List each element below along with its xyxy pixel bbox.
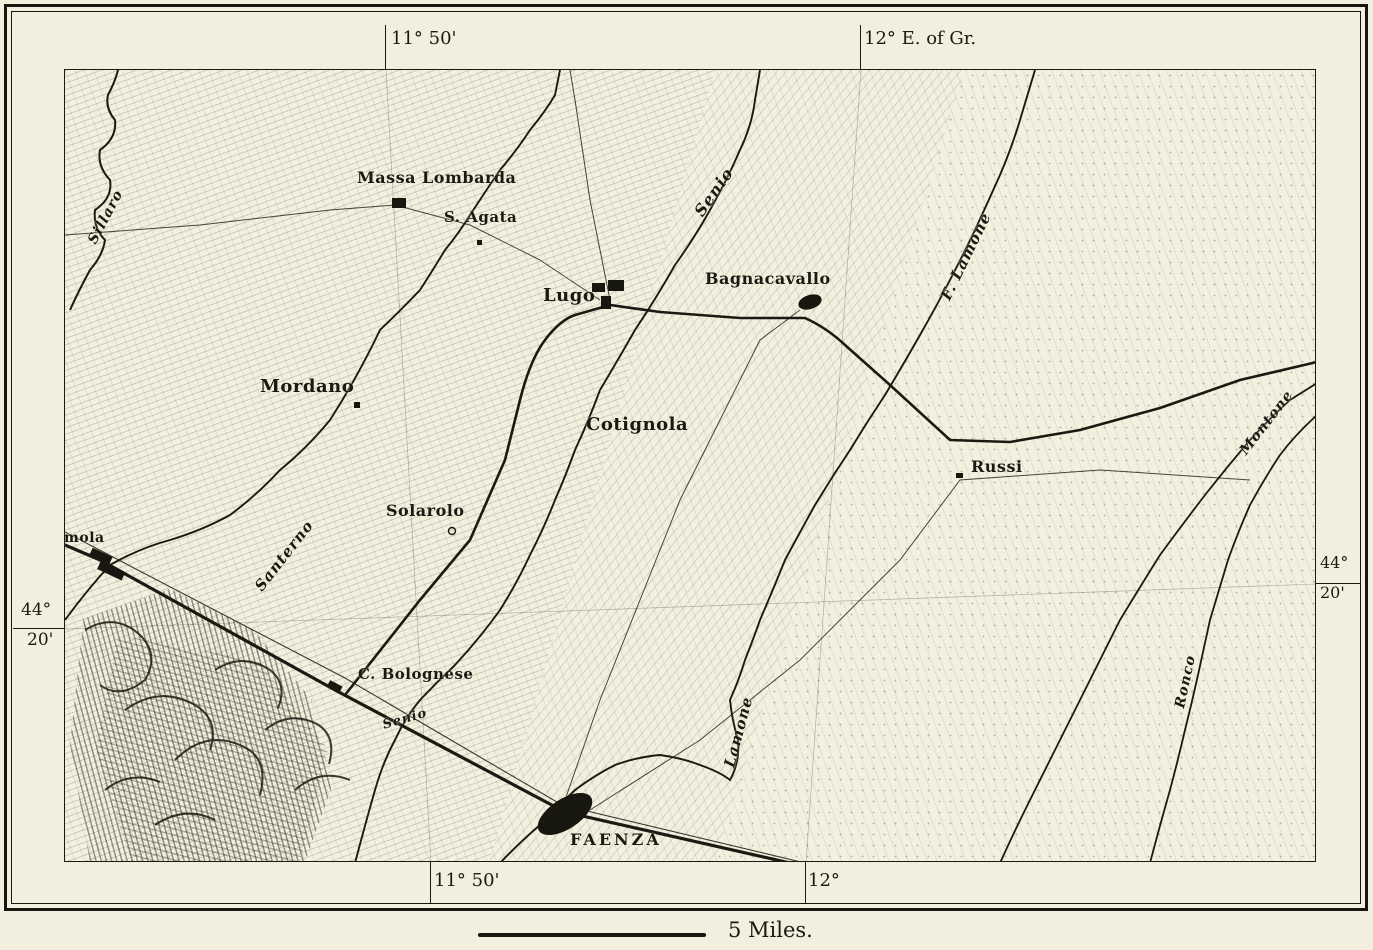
town-label-imola: Imola [64, 530, 105, 546]
top-tick-12 [860, 25, 861, 69]
town-symbol-russi [956, 473, 963, 478]
top-right-longitude-label: 12° E. of Gr. [864, 28, 976, 49]
map-linework [65, 70, 1316, 862]
town-label-bagnacavallo: Bagnacavallo [705, 269, 831, 288]
river-santerno [65, 70, 560, 620]
river-montone [1000, 383, 1316, 862]
graticule-line-12 [806, 70, 861, 862]
map-canvas: Massa Lombarda S. Agata Lugo Bagnacavall… [64, 69, 1316, 862]
town-label-cotignola: Cotignola [586, 414, 688, 435]
town-symbol-lugo-2 [608, 280, 624, 291]
right-latitude-degrees-label: 44° [1320, 553, 1348, 572]
hill-ridge-strokes [85, 622, 350, 825]
town-label-lugo: Lugo [543, 285, 595, 306]
left-latitude-minutes-label: 20' [27, 630, 53, 650]
scale-bar [478, 933, 706, 937]
town-label-faenza: FAENZA [570, 830, 662, 849]
left-tick-44-20 [13, 628, 64, 629]
road-faenza-north [565, 310, 800, 800]
bottom-right-longitude-label: 12° [808, 870, 840, 891]
town-symbol-mordano [354, 402, 360, 408]
town-label-castel-bolognese: C. Bolognese [358, 665, 473, 683]
top-tick-11-50 [385, 25, 386, 69]
road-massa-lombarda-lugo [65, 205, 600, 300]
railway-lugo-branch [345, 305, 1316, 695]
river-lamone [500, 70, 1035, 862]
road-faenza-russi [590, 470, 1250, 810]
town-symbol-s-agata [477, 240, 482, 245]
bottom-left-longitude-label: 11° 50' [434, 870, 499, 891]
town-label-s-agata: S. Agata [444, 208, 517, 226]
bottom-tick-12 [805, 862, 806, 904]
road-lugo-north [570, 70, 610, 300]
town-label-mordano: Mordano [260, 376, 354, 397]
town-symbol-massa-lombarda [392, 198, 406, 208]
river-senio [355, 70, 760, 862]
left-latitude-degrees-label: 44° [21, 600, 51, 620]
town-label-massa-lombarda: Massa Lombarda [357, 168, 516, 187]
engraved-map-page: 11° 50' 12° E. of Gr. 11° 50' 12° 44° 20… [0, 0, 1373, 950]
top-left-longitude-label: 11° 50' [391, 28, 456, 49]
river-ronco [1150, 415, 1316, 862]
right-latitude-minutes-label: 20' [1320, 583, 1345, 602]
scale-label: 5 Miles. [728, 918, 813, 942]
town-symbol-bagnacavallo [796, 292, 823, 313]
town-label-russi: Russi [971, 457, 1023, 476]
town-symbol-lugo-3 [601, 296, 611, 309]
town-label-solarolo: Solarolo [386, 501, 465, 520]
bottom-tick-11-50 [430, 862, 431, 904]
town-symbol-solarolo [449, 528, 456, 535]
